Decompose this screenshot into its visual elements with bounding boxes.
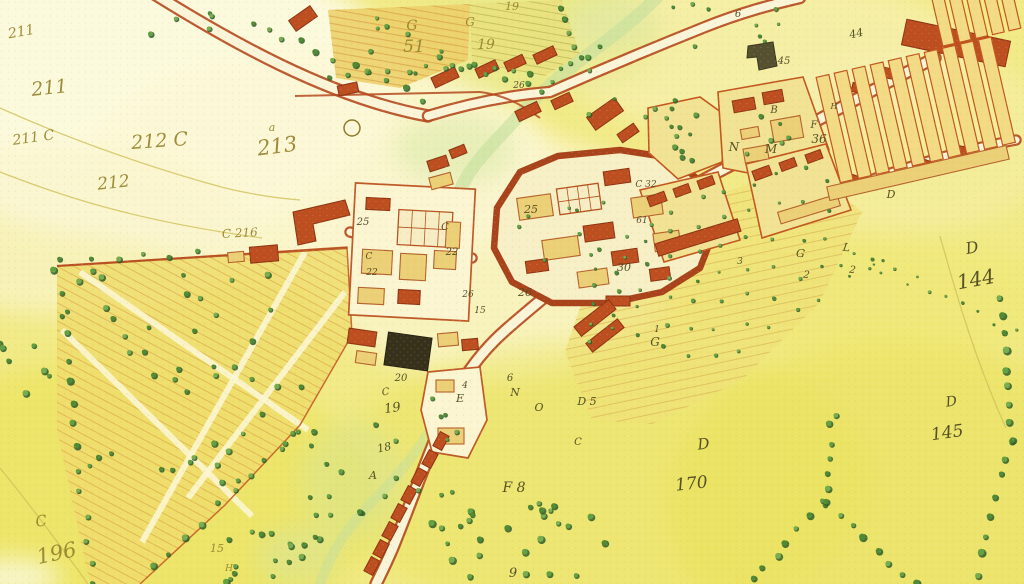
map-label: 26 [517, 286, 532, 299]
map-label: 26 [461, 290, 474, 300]
map-canvas: 211211211 C212 C212213aC 216G51G19192664… [0, 0, 1024, 584]
map-label: 6 [507, 373, 514, 384]
map-label: 19 [383, 400, 401, 417]
map-label: 26 [512, 81, 525, 91]
map-label: G [650, 335, 660, 349]
map-label: C 32 [635, 180, 656, 190]
map-label: 170 [674, 472, 709, 495]
map-label: D [886, 188, 896, 201]
map-label: 15 [474, 306, 486, 316]
map-label: 25 [356, 217, 370, 228]
map-label: H [224, 564, 233, 574]
map-label: F 8 [501, 480, 525, 496]
map-label: 212 [95, 171, 130, 194]
map-label: E [455, 392, 464, 405]
map-label: 51 [403, 37, 425, 57]
map-label: B [769, 105, 777, 116]
map-label: 2 [801, 269, 810, 281]
map-label: 9 [509, 566, 517, 581]
paper-grain [0, 0, 1024, 584]
map-label: 4 [461, 381, 468, 391]
map-label: 22 [445, 247, 459, 258]
map-label: 61 [636, 216, 647, 226]
map-label: 22 [365, 268, 378, 278]
historical-map-image: 211211211 C212 C212213aC 216G51G19192664… [0, 0, 1024, 584]
map-label: 19 [477, 37, 495, 53]
map-label: H [830, 102, 839, 111]
map-label: 211 [29, 75, 68, 101]
map-label: D [696, 434, 711, 453]
map-label: F [810, 120, 819, 131]
map-label: 1 [654, 325, 660, 335]
map-label: a [269, 121, 276, 134]
map-label: A [368, 469, 377, 482]
map-label: 20 [394, 373, 408, 384]
map-label: 45 [777, 56, 791, 67]
map-label: G [406, 18, 417, 34]
map-label: C [366, 252, 373, 262]
map-label: 213 [255, 132, 299, 161]
map-label: C [441, 222, 449, 233]
map-label: 15 [210, 542, 224, 555]
map-label: 6 [735, 9, 742, 20]
map-label: C 216 [221, 225, 258, 241]
map-label: 36 [811, 132, 827, 146]
map-label: 2 [847, 264, 856, 276]
grain-overlay [0, 0, 1024, 584]
map-label: G [465, 15, 475, 29]
map-label: 25 [523, 203, 538, 216]
map-label: M [764, 142, 778, 156]
map-label: O [534, 401, 543, 414]
map-label: D [944, 393, 958, 411]
map-label: 30 [617, 261, 631, 274]
map-label: 19 [505, 0, 519, 13]
map-label: D 5 [576, 395, 596, 408]
map-label: N [509, 386, 520, 399]
map-label: C [574, 437, 582, 448]
map-label: 212 C [129, 128, 189, 154]
map-label: 3 [737, 257, 743, 267]
map-label: N [728, 140, 740, 154]
